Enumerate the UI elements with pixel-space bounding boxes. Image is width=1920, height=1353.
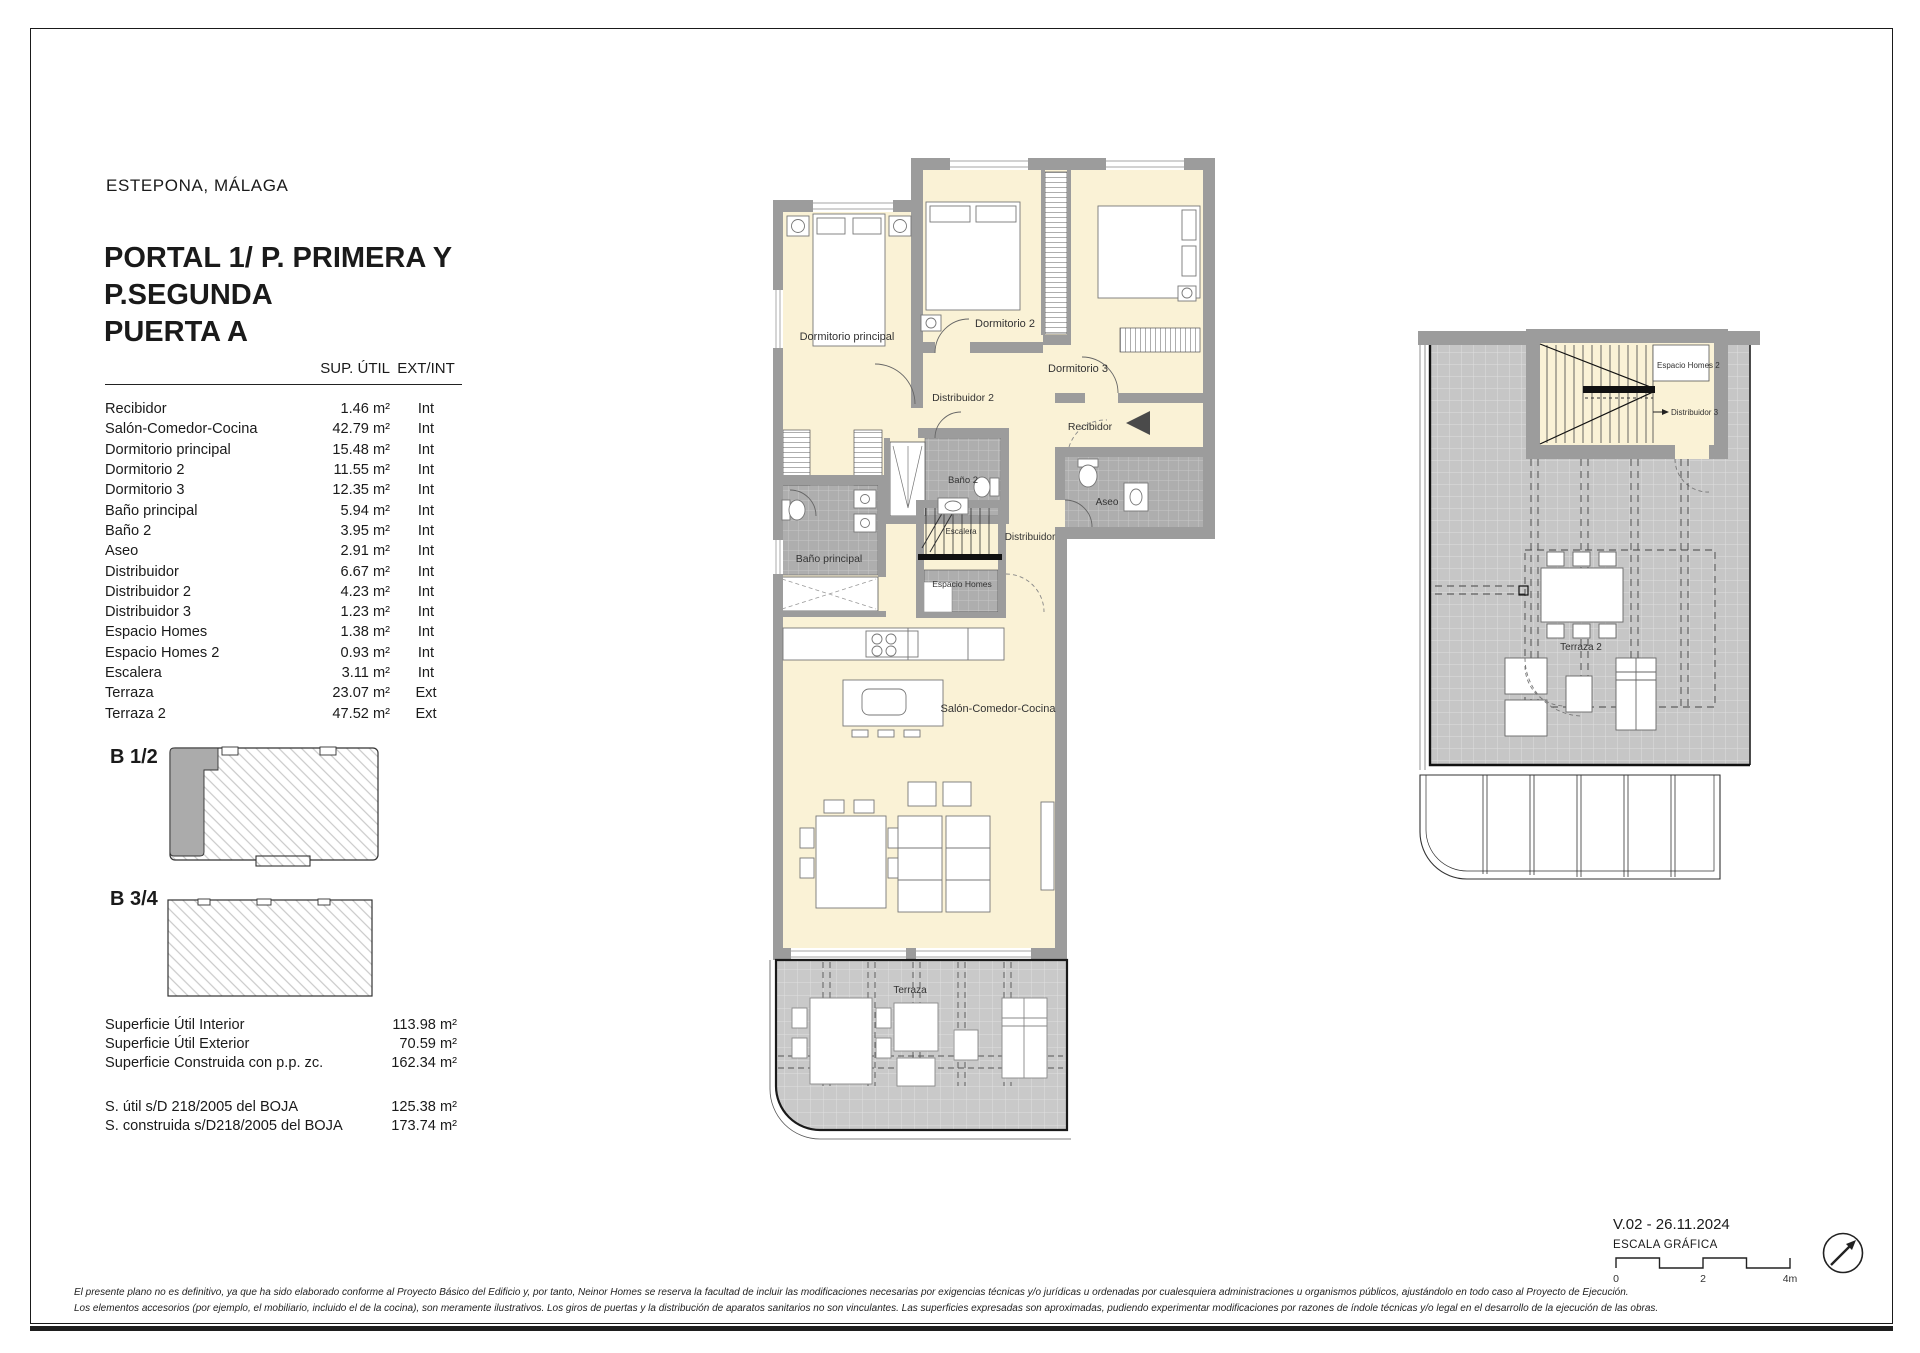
cell-area: 15.48 m²	[287, 440, 390, 460]
side-table	[1566, 676, 1592, 712]
upper-slat-band	[1420, 775, 1720, 879]
cell-name: Dormitorio 3	[105, 480, 287, 500]
scale-tick-2: 2	[1700, 1273, 1706, 1285]
summary-value: 113.98 m²	[392, 1016, 457, 1035]
label-espacio-homes: Espacio Homes	[932, 579, 992, 589]
label-recibidor: Recibidor	[1068, 421, 1113, 433]
side-table	[954, 1030, 978, 1060]
cell-area: 11.55 m²	[287, 460, 390, 480]
wardrobe-dorm2	[1045, 172, 1067, 334]
sink	[1124, 483, 1148, 511]
surface-summary: Superficie Útil Interior113.98 m²Superfi…	[105, 1016, 457, 1073]
scale-tick-4m: 4m	[1783, 1273, 1798, 1285]
label-espacio-homes-2: Espacio Homes 2	[1657, 361, 1720, 370]
dining-table	[816, 816, 886, 908]
label-terraza-2: Terraza 2	[1560, 642, 1602, 653]
cell-name: Dormitorio principal	[105, 440, 287, 460]
table-row: Escalera3.11 m²Int	[105, 663, 462, 683]
cell-name: Espacio Homes 2	[105, 643, 287, 663]
outdoor-dining-table	[1541, 568, 1623, 622]
cell-type: Int	[390, 460, 462, 480]
sofa	[946, 816, 990, 912]
summary-row: Superficie Útil Exterior70.59 m²	[105, 1035, 457, 1054]
col-ext-int: EXT/INT	[390, 360, 462, 385]
cell-type: Ext	[390, 683, 462, 703]
sideboard	[1041, 802, 1054, 890]
areas-table-header: SUP. ÚTIL EXT/INT	[105, 360, 462, 385]
label-salon: Salón-Comedor-Cocina	[941, 703, 1057, 715]
cell-type: Int	[390, 385, 462, 420]
plan-sheet: ESTEPONA, MÁLAGA PORTAL 1/ P. PRIMERA Y …	[0, 0, 1920, 1353]
table-row: Espacio Homes 20.93 m²Int	[105, 643, 462, 663]
sink	[854, 490, 876, 508]
ottoman	[897, 1058, 935, 1086]
scale-bar: 0 2 4m	[1608, 1249, 1803, 1285]
cell-type: Ext	[390, 703, 462, 723]
cell-name: Terraza	[105, 683, 287, 703]
table-row: Distribuidor6.67 m²Int	[105, 561, 462, 581]
cell-area: 47.52 m²	[287, 703, 390, 723]
cell-area: 6.67 m²	[287, 561, 390, 581]
key-plan-1-label: B 1/2	[110, 746, 158, 769]
table-row: Dormitorio principal15.48 m²Int	[105, 440, 462, 460]
table-row: Terraza23.07 m²Ext	[105, 683, 462, 703]
col-sup-util: SUP. ÚTIL	[287, 360, 390, 385]
outdoor-chair	[894, 1003, 938, 1051]
sink	[854, 514, 876, 532]
cell-area: 3.95 m²	[287, 521, 390, 541]
cell-area: 23.07 m²	[287, 683, 390, 703]
cell-name: Espacio Homes	[105, 622, 287, 642]
cell-area: 1.23 m²	[287, 602, 390, 622]
summary-value: 125.38 m²	[391, 1098, 457, 1117]
summary-row: S. construida s/D218/2005 del BOJA173.74…	[105, 1117, 457, 1136]
summary-label: Superficie Útil Exterior	[105, 1035, 249, 1054]
title-line-1: PORTAL 1/ P. PRIMERA Y	[104, 240, 452, 277]
cell-type: Int	[390, 480, 462, 500]
cell-area: 1.46 m²	[287, 385, 390, 420]
kitchen-island	[843, 680, 943, 726]
version-label: V.02 - 26.11.2024	[1613, 1216, 1730, 1233]
areas-table: SUP. ÚTIL EXT/INT Recibidor1.46 m²IntSal…	[105, 360, 462, 724]
page-border-bottom	[30, 1326, 1893, 1331]
table-row: Dormitorio 312.35 m²Int	[105, 480, 462, 500]
sink	[938, 498, 968, 514]
cell-area: 2.91 m²	[287, 541, 390, 561]
label-dormitorio-2: Dormitorio 2	[975, 318, 1035, 330]
summary-row: Superficie Útil Interior113.98 m²	[105, 1016, 457, 1035]
label-terraza: Terraza	[893, 985, 927, 996]
label-aseo: Aseo	[1096, 497, 1119, 508]
label-distribuidor-2: Distribuidor 2	[932, 392, 994, 404]
summary-value: 162.34 m²	[391, 1054, 457, 1073]
table-row: Terraza 247.52 m²Ext	[105, 703, 462, 723]
armchair	[943, 782, 971, 806]
nightstand	[889, 216, 911, 236]
cell-area: 42.79 m²	[287, 419, 390, 439]
upper-floor-plan: Espacio Homes 2 Distribuidor 3 Terraz	[1413, 328, 1765, 890]
terrace-furniture	[792, 998, 1047, 1086]
scale-tick-0: 0	[1613, 1273, 1619, 1285]
page-title: PORTAL 1/ P. PRIMERA Y P.SEGUNDA PUERTA …	[104, 240, 452, 351]
boja-summary: S. útil s/D 218/2005 del BOJA125.38 m²S.…	[105, 1098, 457, 1136]
table-row: Baño principal5.94 m²Int	[105, 500, 462, 520]
cell-type: Int	[390, 500, 462, 520]
key-plan-2	[160, 890, 382, 1008]
cell-type: Int	[390, 602, 462, 622]
key-plan-1	[160, 744, 384, 872]
label-distribuidor-3: Distribuidor 3	[1671, 408, 1719, 417]
disclaimer: El presente plano no es definitivo, ya q…	[74, 1285, 1884, 1317]
cell-type: Int	[390, 419, 462, 439]
disclaimer-line-1: El presente plano no es definitivo, ya q…	[74, 1285, 1884, 1301]
disclaimer-line-2: Los elementos accesorios (por ejemplo, e…	[74, 1301, 1884, 1317]
table-row: Dormitorio 211.55 m²Int	[105, 460, 462, 480]
label-dormitorio-3: Dormitorio 3	[1048, 363, 1108, 375]
label-distribuidor: Distribuidor	[1005, 532, 1056, 543]
cell-type: Int	[390, 440, 462, 460]
areas-table-body: Recibidor1.46 m²IntSalón-Comedor-Cocina4…	[105, 385, 462, 724]
cell-type: Int	[390, 663, 462, 683]
col-room	[105, 360, 287, 385]
armchair	[908, 782, 936, 806]
cell-type: Int	[390, 561, 462, 581]
cell-area: 3.11 m²	[287, 663, 390, 683]
table-row: Salón-Comedor-Cocina42.79 m²Int	[105, 419, 462, 439]
cell-name: Recibidor	[105, 385, 287, 420]
cell-area: 5.94 m²	[287, 500, 390, 520]
key-plan-2-building	[168, 899, 372, 996]
outdoor-table	[810, 998, 872, 1084]
nightstand	[787, 216, 809, 236]
cell-name: Terraza 2	[105, 703, 287, 723]
table-row: Espacio Homes1.38 m²Int	[105, 622, 462, 642]
cell-type: Int	[390, 541, 462, 561]
table-row: Aseo2.91 m²Int	[105, 541, 462, 561]
summary-row: S. útil s/D 218/2005 del BOJA125.38 m²	[105, 1098, 457, 1117]
summary-row: Superficie Construida con p.p. zc.162.34…	[105, 1054, 457, 1073]
nightstand	[921, 315, 941, 331]
sofa	[898, 816, 942, 912]
summary-value: 173.74 m²	[391, 1117, 457, 1136]
label-dormitorio-principal: Dormitorio principal	[800, 331, 895, 343]
wardrobe-dorm3	[1120, 328, 1200, 352]
cell-area: 12.35 m²	[287, 480, 390, 500]
cell-area: 1.38 m²	[287, 622, 390, 642]
title-line-2: P.SEGUNDA	[104, 277, 452, 314]
cell-name: Baño 2	[105, 521, 287, 541]
table-row: Baño 23.95 m²Int	[105, 521, 462, 541]
main-floor-plan: Dormitorio principal Dormitorio 2 Dormit…	[758, 150, 1218, 1150]
cell-type: Int	[390, 622, 462, 642]
north-arrow-icon	[1820, 1230, 1868, 1278]
summary-label: Superficie Construida con p.p. zc.	[105, 1054, 323, 1073]
cell-area: 4.23 m²	[287, 582, 390, 602]
table-row: Recibidor1.46 m²Int	[105, 385, 462, 420]
summary-value: 70.59 m²	[399, 1035, 457, 1054]
cell-name: Distribuidor 2	[105, 582, 287, 602]
cell-name: Distribuidor 3	[105, 602, 287, 622]
title-line-3: PUERTA A	[104, 314, 452, 351]
label-bano-2: Baño 2	[948, 475, 978, 486]
summary-label: Superficie Útil Interior	[105, 1016, 245, 1035]
location-label: ESTEPONA, MÁLAGA	[106, 176, 288, 196]
cell-name: Baño principal	[105, 500, 287, 520]
label-bano-principal: Baño principal	[796, 553, 863, 565]
cell-type: Int	[390, 521, 462, 541]
cell-name: Aseo	[105, 541, 287, 561]
summary-label: S. construida s/D218/2005 del BOJA	[105, 1117, 343, 1136]
cell-name: Dormitorio 2	[105, 460, 287, 480]
cell-name: Escalera	[105, 663, 287, 683]
cell-name: Salón-Comedor-Cocina	[105, 419, 287, 439]
lounger	[1505, 700, 1547, 736]
summary-label: S. útil s/D 218/2005 del BOJA	[105, 1098, 298, 1117]
table-row: Distribuidor 31.23 m²Int	[105, 602, 462, 622]
cell-type: Int	[390, 582, 462, 602]
key-plan-1-building	[170, 747, 378, 866]
lounger	[1002, 998, 1047, 1078]
toilet	[990, 478, 999, 496]
label-escalera: Escalera	[945, 527, 977, 536]
table-row: Distribuidor 24.23 m²Int	[105, 582, 462, 602]
cell-name: Distribuidor	[105, 561, 287, 581]
key-plan-2-label: B 3/4	[110, 888, 158, 911]
cell-area: 0.93 m²	[287, 643, 390, 663]
cell-type: Int	[390, 643, 462, 663]
